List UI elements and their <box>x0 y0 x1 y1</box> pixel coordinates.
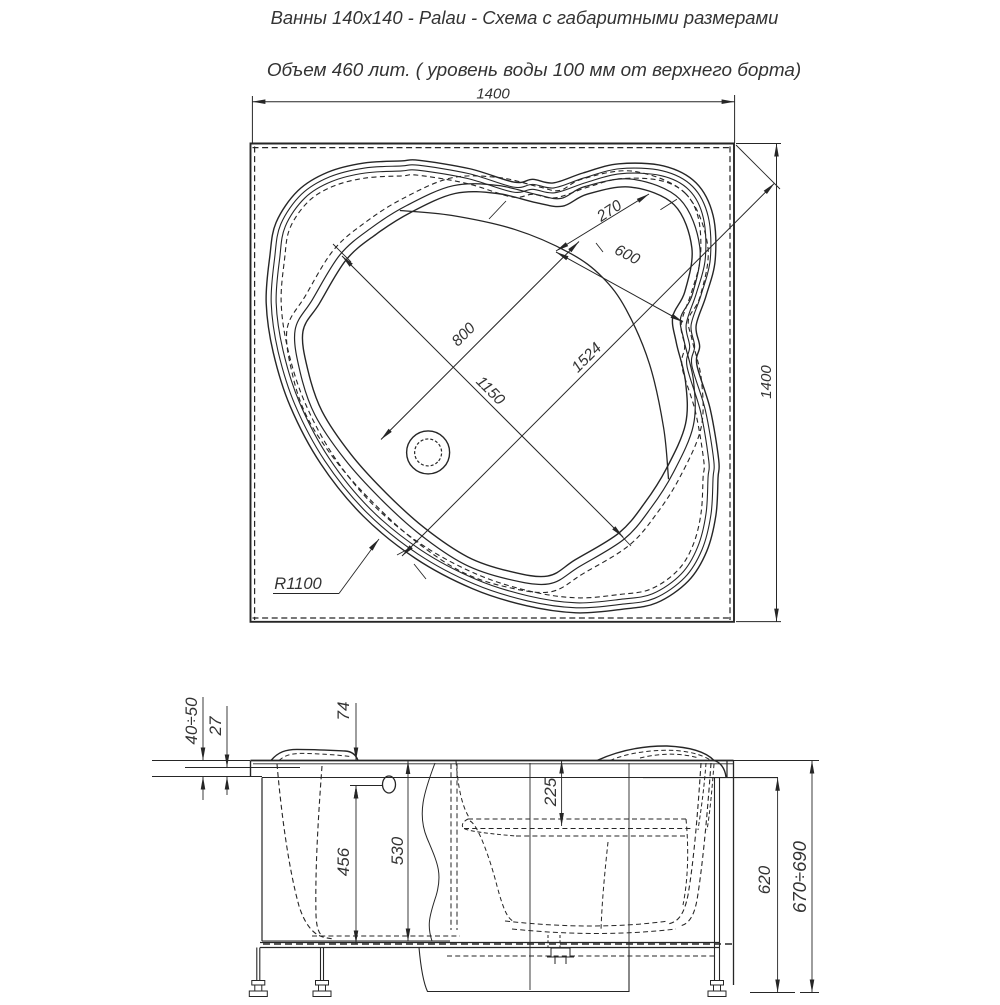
svg-text:270: 270 <box>593 197 625 226</box>
svg-text:40÷50: 40÷50 <box>182 697 201 745</box>
svg-text:74: 74 <box>334 702 353 721</box>
svg-text:670÷690: 670÷690 <box>789 840 810 913</box>
svg-text:1400: 1400 <box>476 86 510 103</box>
svg-text:Объем 460 лит. ( уровень воды: Объем 460 лит. ( уровень воды 100 мм от … <box>267 60 801 81</box>
svg-text:R1100: R1100 <box>274 575 322 593</box>
svg-text:Ванны 140x140 - Palau - Схема: Ванны 140x140 - Palau - Схема с габаритн… <box>271 7 779 28</box>
svg-text:225: 225 <box>541 777 560 807</box>
svg-text:600: 600 <box>612 242 643 269</box>
svg-text:530: 530 <box>388 836 407 865</box>
svg-text:456: 456 <box>334 847 353 876</box>
svg-text:27: 27 <box>206 716 225 736</box>
svg-text:1400: 1400 <box>758 365 775 399</box>
svg-text:1150: 1150 <box>472 373 508 409</box>
svg-text:620: 620 <box>755 865 774 894</box>
